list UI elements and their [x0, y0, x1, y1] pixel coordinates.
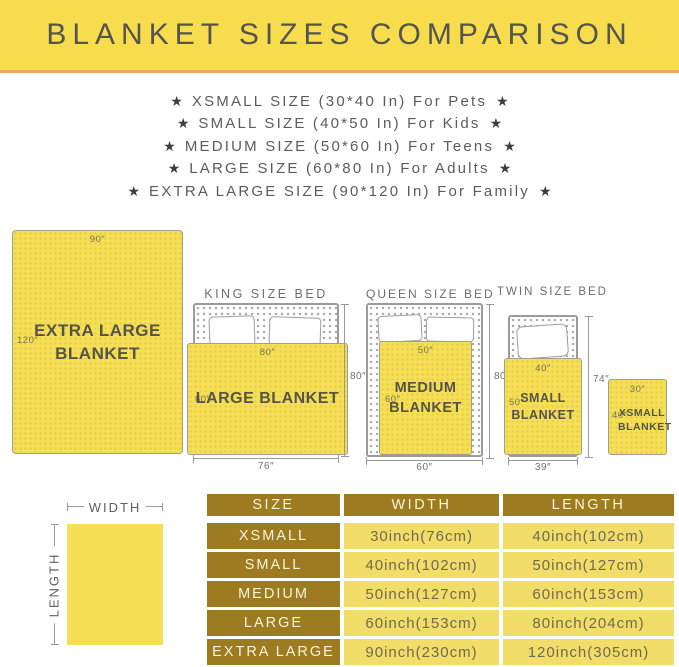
king-bed-height-label: 80″: [350, 371, 366, 382]
blanket-sizes-infographic: BLANKET SIZES COMPARISON ★XSMALL SIZE (3…: [0, 0, 679, 667]
xsmall-width-label: 30″: [609, 384, 666, 395]
table-row-length: 80inch(204cm): [503, 610, 674, 636]
table-header-size: SIZE: [207, 494, 340, 516]
table-row-size: XSMALL: [207, 523, 340, 549]
xl-blanket-name: EXTRA LARGE BLANKET: [13, 231, 182, 453]
small-blanket-name: SMALL BLANKET: [505, 359, 581, 454]
table-row-length: 120inch(305cm): [503, 639, 674, 665]
page-title: BLANKET SIZES COMPARISON: [46, 18, 632, 52]
star-icon: ★: [170, 93, 183, 109]
size-table: SIZE WIDTH LENGTH XSMALL 30inch(76cm) 40…: [207, 494, 674, 665]
twin-bed-width-dimension-line: [508, 460, 578, 461]
king-bed-title: KING SIZE BED: [193, 287, 339, 301]
queen-bed-width-dimension-line: [366, 460, 483, 461]
table-header-length: LENGTH: [503, 494, 674, 516]
star-icon: ★: [163, 138, 176, 154]
size-list: ★XSMALL SIZE (30*40 In) For Pets★ ★SMALL…: [0, 90, 679, 202]
pillow: [516, 323, 569, 359]
xsmall-blanket: 30″ 40″ XSMALL BLANKET: [608, 379, 667, 455]
size-list-label: XSMALL SIZE (30*40 In) For Pets: [192, 93, 487, 110]
table-row-size: MEDIUM: [207, 581, 340, 607]
table-row-width: 60inch(153cm): [344, 610, 499, 636]
extra-large-blanket: 90″ 120″ EXTRA LARGE BLANKET: [12, 230, 183, 454]
table-row-width: 30inch(76cm): [344, 523, 499, 549]
king-bed-width-label: 76″: [193, 461, 339, 472]
large-blanket-name: LARGE BLANKET: [196, 390, 339, 408]
twin-bed-width-label: 39″: [508, 462, 578, 473]
star-icon: ★: [177, 115, 190, 131]
table-row-length: 50inch(127cm): [503, 552, 674, 578]
table-row-length: 40inch(102cm): [503, 523, 674, 549]
size-list-item-small: ★SMALL SIZE (40*50 In) For Kids★: [0, 112, 679, 134]
size-list-item-large: ★LARGE SIZE (60*80 In) For Adults★: [0, 157, 679, 179]
size-list-item-medium: ★MEDIUM SIZE (50*60 In) For Teens★: [0, 135, 679, 157]
table-row-width: 90inch(230cm): [344, 639, 499, 665]
star-icon: ★: [168, 160, 181, 176]
table-header-width: WIDTH: [344, 494, 499, 516]
star-icon: ★: [496, 93, 509, 109]
size-list-label: MEDIUM SIZE (50*60 In) For Teens: [185, 138, 494, 155]
legend-blanket-swatch: [67, 524, 163, 645]
large-blanket: 80″ 60″ LARGE BLANKET: [187, 343, 348, 455]
queen-bed-height-dimension-line: [489, 304, 490, 459]
size-list-item-xsmall: ★XSMALL SIZE (30*40 In) For Pets★: [0, 90, 679, 112]
size-list-label: LARGE SIZE (60*80 In) For Adults: [189, 160, 490, 177]
table-row-size: LARGE: [207, 610, 340, 636]
queen-bed-width-label: 60″: [366, 462, 483, 473]
queen-bed-title: QUEEN SIZE BED: [366, 287, 483, 301]
medium-blanket: 50″ 60″ MEDIUM BLANKET: [379, 341, 472, 455]
star-icon: ★: [499, 160, 512, 176]
size-list-label: EXTRA LARGE SIZE (90*120 In) For Family: [149, 183, 530, 200]
table-row-width: 40inch(102cm): [344, 552, 499, 578]
banner: BLANKET SIZES COMPARISON: [0, 0, 679, 73]
star-icon: ★: [539, 183, 552, 199]
table-row-size: EXTRA LARGE: [207, 639, 340, 665]
star-icon: ★: [490, 115, 503, 131]
twin-bed-height-label: 74″: [593, 374, 609, 385]
legend-width-label: WIDTH: [67, 499, 163, 517]
table-row-width: 50inch(127cm): [344, 581, 499, 607]
size-list-label: SMALL SIZE (40*50 In) For Kids: [198, 115, 480, 132]
king-bed-width-dimension-line: [193, 458, 339, 459]
table-row-length: 60inch(153cm): [503, 581, 674, 607]
table-row-size: SMALL: [207, 552, 340, 578]
king-bed-height-dimension-line: [344, 304, 345, 457]
medium-blanket-name: MEDIUM BLANKET: [380, 342, 471, 454]
twin-bed-title: TWIN SIZE BED: [497, 286, 597, 298]
small-blanket: 40″ 50″ SMALL BLANKET: [504, 358, 582, 455]
twin-bed-height-dimension-line: [588, 316, 589, 458]
pillow: [426, 317, 474, 343]
xsmall-blanket-name: XSMALL BLANKET: [618, 407, 666, 434]
legend-length-label: LENGTH: [47, 547, 62, 624]
star-icon: ★: [127, 183, 140, 199]
star-icon: ★: [503, 138, 516, 154]
pillow: [377, 314, 422, 343]
size-list-item-extra-large: ★EXTRA LARGE SIZE (90*120 In) For Family…: [0, 180, 679, 202]
